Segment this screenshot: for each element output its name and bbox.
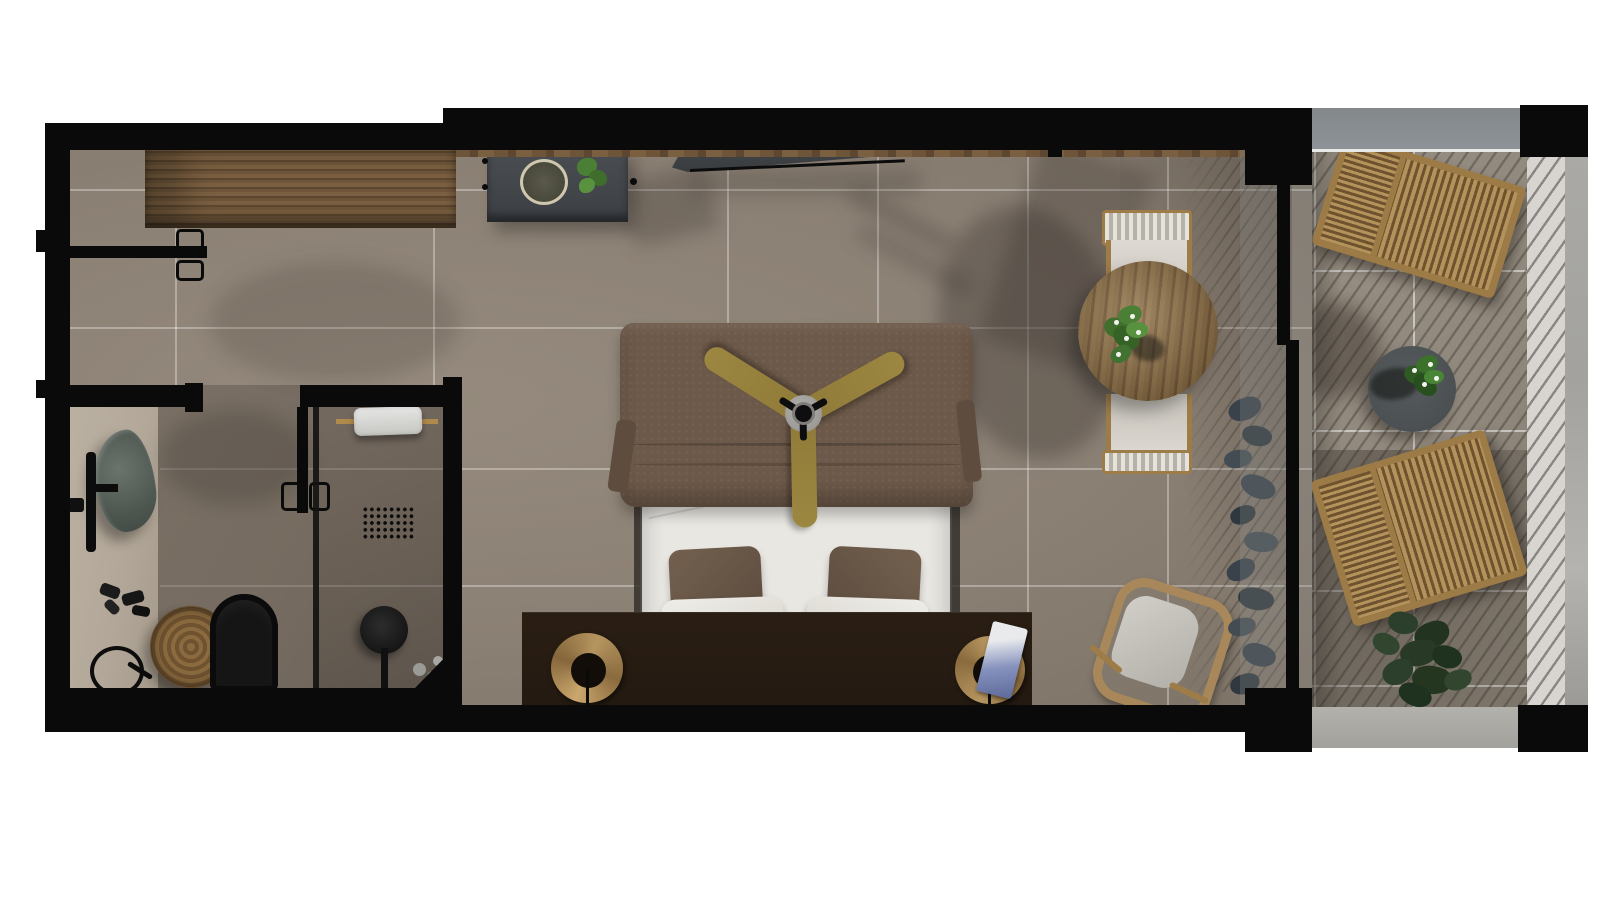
bathroom-door-handle (281, 482, 302, 511)
wall-bathroom-top-left (57, 385, 203, 407)
shower-screen (313, 407, 319, 688)
entry-door-handle (176, 229, 204, 250)
wall-bathroom-bottom (45, 688, 460, 732)
floor-drain (362, 506, 414, 539)
balcony-curb (1312, 707, 1518, 748)
armchair-bottom-cushion (1106, 394, 1192, 454)
glass-railing-base (1527, 157, 1565, 707)
desk-tray (520, 159, 568, 205)
floor-plan (0, 0, 1600, 900)
wardrobe-counter (145, 148, 456, 228)
shower-head (360, 606, 408, 654)
tile-grout-line (160, 585, 443, 587)
wall-door-post (185, 383, 203, 412)
entry-door-handle (176, 260, 204, 281)
wall-top-left (45, 123, 443, 150)
wall-bedroom-bottom (460, 705, 1245, 732)
wall-stub (36, 380, 56, 398)
wall-stub (36, 230, 58, 252)
armchair-bottom-footer (1102, 450, 1192, 474)
faucet-knob (68, 498, 84, 512)
shampoo-bottles (413, 663, 426, 676)
towel (354, 406, 423, 436)
wall-bathroom-right (443, 377, 462, 707)
railing-outer-edge (1565, 157, 1588, 707)
toilet (210, 594, 278, 692)
wall-corner-inner (1245, 108, 1312, 185)
wall-bathroom-top-right (300, 385, 462, 407)
balcony-top-railing-line (1312, 149, 1520, 152)
fan-center (795, 405, 812, 422)
shower-arm (381, 648, 388, 690)
table-plant (1104, 306, 1164, 368)
desk-screw (630, 178, 637, 185)
lamp-stem (586, 668, 589, 708)
faucet-spout (86, 484, 118, 492)
desk-screw (482, 184, 488, 190)
glass-tint (1240, 150, 1312, 707)
cast-shadow (210, 262, 460, 382)
balcony-top-railing (1312, 108, 1520, 152)
vanity-counter (70, 385, 158, 688)
wall-balcony-bottom-right (1518, 705, 1588, 752)
desk-screw (482, 158, 488, 164)
sliding-door-frame (1286, 340, 1299, 690)
faucet (86, 452, 96, 552)
wall-balcony-bottom-left (1245, 688, 1312, 752)
wall-top-middle (443, 108, 1245, 150)
balcony-plant (1404, 356, 1454, 412)
cast-shadow (695, 170, 920, 194)
wall-balcony-top-right (1520, 105, 1588, 157)
balcony (1312, 150, 1527, 707)
balcony-shrub (1348, 612, 1488, 707)
